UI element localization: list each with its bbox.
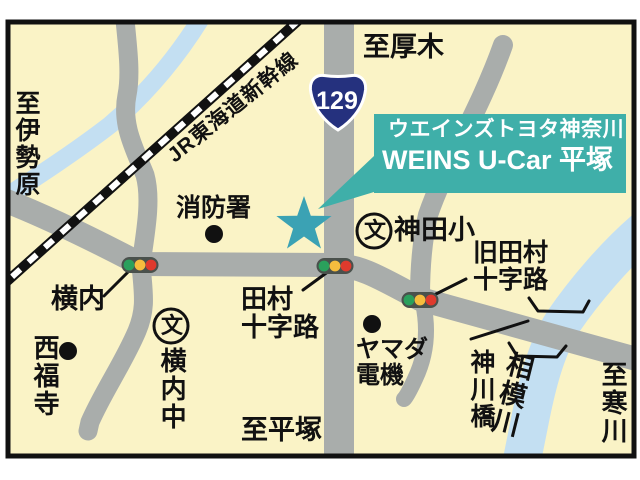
signal-green-light: [319, 261, 330, 272]
label-yamada-denki: ヤマダ 電機: [356, 337, 428, 389]
label-kyu-tamura-line1: 旧田村: [473, 240, 548, 267]
school-symbol-kanda: 文: [363, 219, 387, 243]
label-tamura-crossing: 田村 十字路: [241, 285, 319, 341]
poi-dot-saifukuji: [59, 342, 77, 360]
label-kanda-elementary: 神田小: [394, 216, 475, 245]
label-fire-station: 消防署: [176, 195, 251, 222]
label-yokouchi-crossing: 横内: [51, 285, 105, 314]
route-shield-number: 129: [309, 88, 365, 115]
label-yamada-line1: ヤマダ: [356, 337, 428, 363]
signal-red-light: [146, 260, 157, 271]
label-kyu-tamura-line2: 十字路: [473, 267, 548, 294]
signal-yellow-light: [135, 260, 146, 271]
signal-red-light: [426, 295, 437, 306]
direction-samukawa: 至寒川: [599, 361, 627, 445]
signal-red-light: [341, 261, 352, 272]
direction-isehara: 至伊勢原: [12, 90, 39, 198]
dealer-access-map: 至厚木 至伊勢原 至平塚 至寒川 JR東海道新幹線 129 ウエインズトヨタ神奈…: [0, 0, 640, 480]
label-yokouchi-junior-high: 横内中: [158, 347, 186, 431]
poi-dot-yamada: [363, 315, 381, 333]
label-tamura-line1: 田村: [241, 285, 319, 313]
traffic-light-yokouchi: [122, 257, 159, 273]
label-tamura-line2: 十字路: [241, 313, 319, 341]
direction-hiratsuka: 至平塚: [241, 416, 322, 445]
poi-dot-fire-station: [205, 225, 223, 243]
label-yamada-line2: 電機: [356, 363, 428, 389]
signal-yellow-light: [415, 295, 426, 306]
traffic-light-kyu-tamura: [402, 292, 439, 308]
signal-green-light: [404, 295, 415, 306]
traffic-light-tamura: [317, 258, 354, 274]
label-saifukuji-temple: 西福寺: [31, 334, 59, 418]
callout-title-line1: ウエインズトヨタ神奈川: [388, 119, 624, 142]
signal-yellow-light: [330, 261, 341, 272]
signal-green-light: [124, 260, 135, 271]
label-kyu-tamura-crossing: 旧田村 十字路: [473, 240, 548, 294]
callout-title-line2: WEINS U-Car 平塚: [382, 146, 613, 175]
school-symbol-yokouchi: 文: [160, 314, 184, 338]
direction-atsugi: 至厚木: [363, 33, 444, 62]
